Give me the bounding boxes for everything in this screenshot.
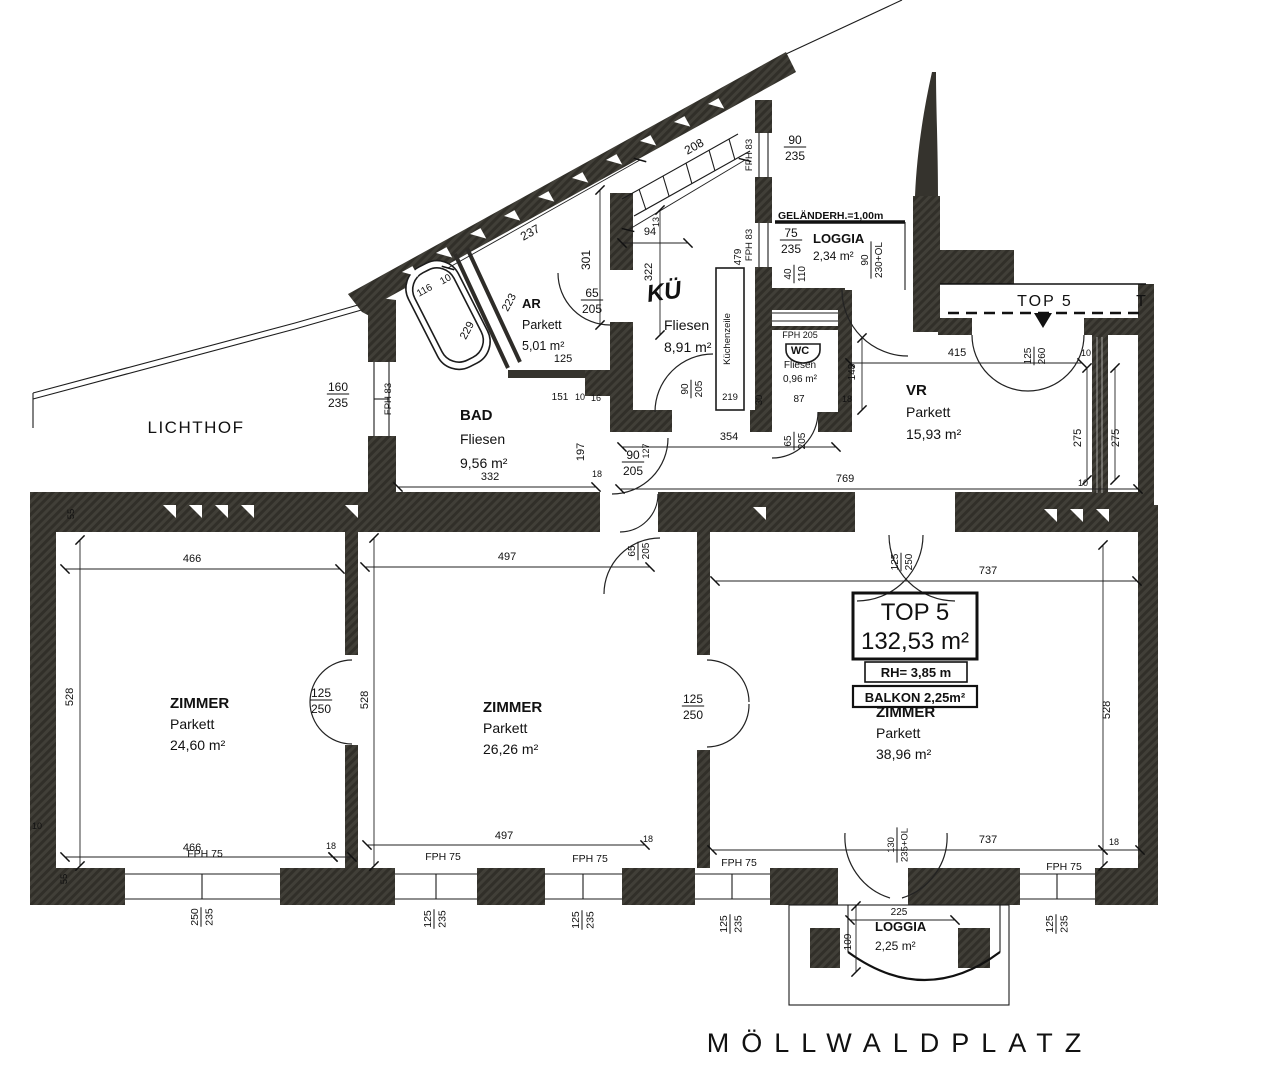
svg-text:250: 250 [683,708,703,722]
svg-text:205: 205 [694,380,705,397]
svg-text:40: 40 [783,268,794,280]
svg-text:260: 260 [1037,347,1048,364]
svg-text:Parkett: Parkett [170,716,214,732]
dim-label: 332 [481,471,499,483]
svg-text:Fliesen: Fliesen [460,431,505,447]
dim-label: 65205 [627,542,652,561]
dim-label: 237 [518,221,543,243]
svg-text:275: 275 [1072,429,1084,447]
dim-label: 322 [643,263,655,281]
svg-text:FPH 75: FPH 75 [187,848,223,860]
svg-text:Parkett: Parkett [522,318,562,332]
svg-text:Küchenzeile: Küchenzeile [722,313,733,365]
svg-text:8,91 m²: 8,91 m² [664,339,712,355]
dim-label: 16 [591,393,601,403]
svg-text:18: 18 [1109,837,1119,847]
dim-label: FPH 75 [425,851,461,863]
balcony-note: BALKON 2,25m² [865,690,966,705]
dim-label: 160235 [327,380,349,410]
svg-text:235: 235 [204,908,216,926]
room-label-vr: VRParkett15,93 m² [906,382,962,442]
dim-label: 125260 [1023,347,1048,366]
svg-text:FPH 205: FPH 205 [782,330,818,340]
svg-text:AR: AR [522,296,541,311]
dim-label: 18 [643,834,653,844]
dim-label: 130235+OL [886,827,911,862]
svg-text:0,96 m²: 0,96 m² [783,374,818,385]
dim-label: 223 [500,292,519,314]
room-label-ar: ARParkett5,01 m² [522,296,564,353]
dim-label: 301 [579,250,593,270]
dim-label: FPH 83 [383,383,394,415]
svg-text:205: 205 [797,432,808,449]
svg-text:219: 219 [722,392,738,403]
svg-text:65: 65 [783,435,794,447]
dim-label: 55 [59,874,70,885]
svg-text:497: 497 [495,830,513,842]
dim-label: 18 [326,841,336,851]
dim-label: 275 [1110,429,1122,447]
stairwell-label: TOP 5 [1017,293,1073,310]
svg-text:322: 322 [643,263,655,281]
dim-label: FPH 75 [721,857,757,869]
svg-text:90: 90 [860,254,871,266]
svg-text:Parkett: Parkett [483,720,527,736]
svg-text:125: 125 [422,910,434,928]
svg-text:13: 13 [651,217,661,227]
unit-name: TOP 5 [881,599,949,626]
dim-label: 127 [641,443,651,458]
svg-text:250: 250 [189,908,201,926]
svg-text:LOGGIA: LOGGIA [813,231,865,246]
svg-text:26,26 m²: 26,26 m² [483,741,539,757]
dim-label: 40110 [783,265,808,284]
svg-text:55: 55 [66,509,77,520]
dim-label: 497 [495,830,513,842]
svg-text:235: 235 [733,915,745,933]
railing-note: GELÄNDERH.=1,00m [778,209,883,222]
dim-label: 466 [183,553,201,565]
room-label-loggia: LOGGIA2,34 m² [813,231,865,263]
dim-label: 219 [722,392,738,403]
dim-label: 528 [1101,701,1113,719]
svg-text:87: 87 [793,394,805,405]
svg-text:ZIMMER: ZIMMER [483,699,542,716]
dim-label: 125235 [718,914,745,934]
svg-text:151: 151 [552,392,569,403]
room-label-kü: KÜFliesen8,91 m² [645,276,712,355]
svg-text:250: 250 [904,553,915,570]
svg-text:90: 90 [626,448,640,462]
dim-label: 90205 [680,380,705,399]
svg-text:15,93 m²: 15,93 m² [906,426,962,442]
svg-text:10: 10 [32,821,42,831]
svg-text:KÜ: KÜ [645,276,684,308]
dim-label: 275 [1072,429,1084,447]
dim-label: 125250 [310,686,332,716]
svg-text:ZIMMER: ZIMMER [170,695,229,712]
svg-text:Fliesen: Fliesen [784,360,816,371]
svg-text:FPH 83: FPH 83 [383,383,394,415]
stairwell-label-partial: T [1136,293,1146,310]
svg-text:125: 125 [570,911,582,929]
dim-label: 479 [733,248,744,265]
courtyard-label: LICHTHOF [148,418,245,437]
dim-label: 55 [66,509,77,520]
svg-text:235: 235 [785,149,805,163]
street-label: MÖLLWALDPLATZ [707,1028,1094,1058]
svg-text:55: 55 [59,874,70,885]
dim-label: 13 [651,217,661,227]
svg-text:2,34 m²: 2,34 m² [813,249,854,263]
svg-text:18: 18 [592,469,602,479]
dim-label: 354 [720,431,738,443]
dim-label: FPH 83 [744,139,755,171]
svg-text:FPH 83: FPH 83 [744,139,755,171]
svg-text:197: 197 [575,443,587,461]
svg-text:16: 16 [591,393,601,403]
svg-text:75: 75 [784,226,798,240]
svg-text:10: 10 [575,392,585,402]
floor-plan-drawing: TOP 5 T 208FPH 8390235752354011090230+OL… [0,0,1268,1080]
svg-text:FPH 75: FPH 75 [1046,861,1082,873]
dim-label: 225 [891,907,908,918]
floor-plan-page: TOP 5 T 208FPH 8390235752354011090230+OL… [0,0,1268,1080]
unit-area: 132,53 m² [861,628,969,655]
svg-text:415: 415 [948,347,966,359]
room-label-zimmer: ZIMMERParkett38,96 m² [876,704,935,762]
svg-text:90: 90 [680,383,691,395]
svg-text:FPH 83: FPH 83 [744,229,755,261]
svg-text:301: 301 [579,250,593,270]
svg-text:769: 769 [836,473,854,485]
svg-text:18: 18 [842,394,852,404]
svg-text:235: 235 [585,911,597,929]
svg-text:160: 160 [328,380,348,394]
svg-text:497: 497 [498,551,516,563]
dim-label: 10 [1081,348,1091,358]
dim-label: 125235 [422,909,449,929]
svg-text:235: 235 [781,242,801,256]
dim-label: 151 [552,392,569,403]
dim-label: 125 [554,353,572,365]
svg-text:65: 65 [627,545,638,557]
svg-text:130: 130 [886,837,897,853]
svg-text:235: 235 [1059,915,1071,933]
dim-label: 769 [836,473,854,485]
svg-text:737: 737 [979,834,997,846]
room-label-zimmer: ZIMMERParkett26,26 m² [483,699,542,757]
svg-text:354: 354 [720,431,738,443]
room-label-loggia: LOGGIA2,25 m² [875,919,927,953]
svg-text:230+OL: 230+OL [874,242,885,278]
svg-text:332: 332 [481,471,499,483]
dim-label: 125235 [1044,914,1071,934]
svg-text:FPH 75: FPH 75 [572,853,608,865]
svg-text:737: 737 [979,565,997,577]
svg-text:148: 148 [847,363,858,380]
svg-text:205: 205 [582,302,602,316]
svg-text:125: 125 [890,553,901,570]
svg-text:Parkett: Parkett [906,404,950,420]
scan-sliver [915,72,938,196]
dim-label: 90235 [784,133,806,163]
dim-label: 497 [498,551,516,563]
svg-text:5,01 m²: 5,01 m² [522,339,564,353]
dim-label: 197 [575,443,587,461]
svg-text:BAD: BAD [460,407,493,424]
svg-text:Parkett: Parkett [876,725,920,741]
svg-text:225: 225 [891,907,908,918]
svg-text:479: 479 [733,248,744,265]
svg-text:528: 528 [1101,701,1113,719]
svg-text:90: 90 [788,133,802,147]
svg-text:235: 235 [437,910,449,928]
dim-label: 415 [948,347,966,359]
dim-label: 125235 [570,910,597,930]
room-label-bad: BADFliesen9,56 m² [460,407,508,471]
svg-text:18: 18 [326,841,336,851]
dim-label: FPH 205 [782,330,818,340]
svg-text:10: 10 [1078,478,1088,488]
svg-text:2,25 m²: 2,25 m² [875,939,916,953]
dim-label: 18 [842,394,852,404]
svg-text:110: 110 [797,266,808,282]
svg-text:65: 65 [585,286,599,300]
dim-label: 125250 [890,553,915,572]
room-label-zimmer: ZIMMERParkett24,60 m² [170,695,229,753]
svg-text:528: 528 [64,688,76,706]
dim-label: 87 [793,394,805,405]
svg-text:109: 109 [843,933,854,950]
dim-label: 90230+OL [860,241,885,278]
dim-label: FPH 75 [572,853,608,865]
svg-text:WC: WC [791,345,809,357]
dim-label: 737 [979,834,997,846]
svg-text:VR: VR [906,382,927,399]
dim-label: 30 [754,395,765,406]
dim-label: 109 [843,933,854,950]
svg-text:LOGGIA: LOGGIA [875,919,927,934]
svg-text:Fliesen: Fliesen [664,317,709,333]
dim-label: 250235 [189,907,216,927]
dim-label: 737 [979,565,997,577]
svg-text:127: 127 [641,443,651,458]
dim-label: 10 [1078,478,1088,488]
dim-label: 528 [64,688,76,706]
dim-label: FPH 75 [1046,861,1082,873]
dim-label: 18 [592,469,602,479]
svg-text:205: 205 [641,542,652,559]
room-height-note: RH= 3,85 m [881,665,951,680]
dim-label: 10 [575,392,585,402]
dim-label: FPH 75 [187,848,223,860]
dim-label: 10 [32,821,42,831]
svg-text:466: 466 [183,553,201,565]
svg-text:250: 250 [311,702,331,716]
svg-text:235: 235 [328,396,348,410]
dim-label: Küchenzeile [722,313,733,365]
svg-text:125: 125 [554,353,572,365]
svg-text:275: 275 [1110,429,1122,447]
svg-text:125: 125 [718,915,730,933]
dim-label: 18 [1109,837,1119,847]
svg-text:223: 223 [500,292,519,314]
svg-text:237: 237 [518,221,543,243]
dim-label: 528 [359,691,371,709]
svg-text:30: 30 [754,395,765,406]
svg-text:125: 125 [1023,347,1034,364]
unit-title-box: TOP 5 132,53 m² RH= 3,85 m BALKON 2,25m² [853,593,977,707]
svg-text:38,96 m²: 38,96 m² [876,746,932,762]
svg-text:205: 205 [623,464,643,478]
svg-text:125: 125 [311,686,331,700]
svg-text:18: 18 [643,834,653,844]
svg-text:125: 125 [683,692,703,706]
svg-text:FPH 75: FPH 75 [721,857,757,869]
dim-label: 75235 [780,226,802,256]
dim-label: 65205 [783,432,808,451]
svg-text:10: 10 [1081,348,1091,358]
svg-text:9,56 m²: 9,56 m² [460,455,508,471]
svg-text:125: 125 [1044,915,1056,933]
svg-text:24,60 m²: 24,60 m² [170,737,226,753]
svg-text:528: 528 [359,691,371,709]
dim-label: FPH 83 [744,229,755,261]
svg-text:235+OL: 235+OL [900,828,911,862]
svg-text:FPH 75: FPH 75 [425,851,461,863]
dim-label: 148 [847,363,858,380]
